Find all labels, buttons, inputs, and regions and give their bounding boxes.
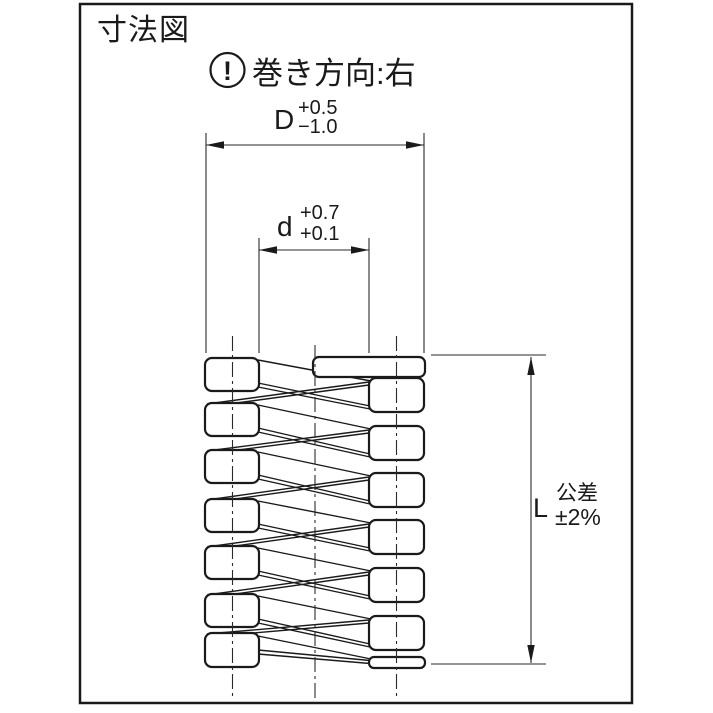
attention-icon-glyph: ! (223, 56, 232, 86)
dimension-diagram-page: 寸法図 ! 巻き方向:右 D +0.5 −1.0 (0, 0, 713, 713)
dim-D-lower-tolerance: −1.0 (298, 116, 337, 138)
page-title: 寸法図 (97, 14, 190, 47)
dim-L-letter: L (533, 493, 548, 523)
dim-L-tolerance-value: ±2% (555, 504, 601, 530)
drawing-frame (80, 4, 632, 703)
dim-L-tolerance-title: 公差 (556, 482, 598, 505)
spring-wire-section (313, 357, 425, 377)
dim-d-letter: d (277, 211, 293, 242)
dim-D-letter: D (274, 104, 294, 135)
dim-d-lower-tolerance: +0.1 (300, 223, 339, 245)
dim-d-upper-tolerance: +0.7 (300, 202, 339, 224)
dimension-drawing-svg: 寸法図 ! 巻き方向:右 D +0.5 −1.0 (0, 0, 713, 713)
winding-direction-label: 巻き方向:右 (252, 56, 416, 91)
